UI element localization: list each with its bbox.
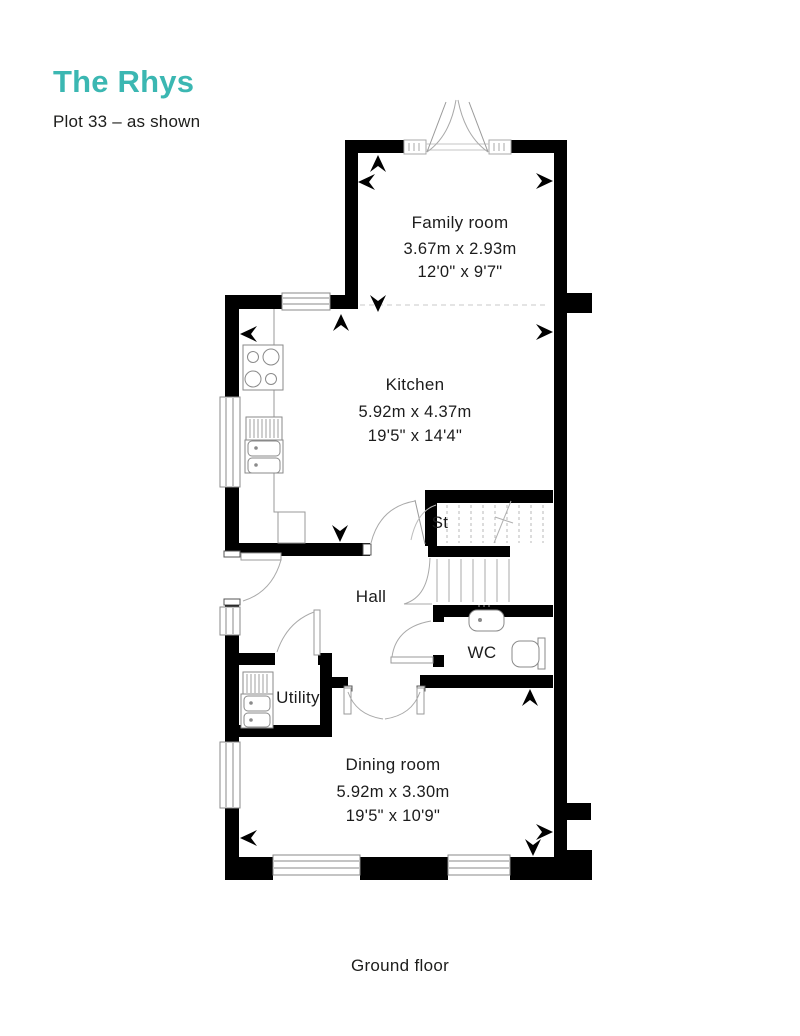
kitchen-label: Kitchen bbox=[386, 375, 445, 394]
kitchen-sink bbox=[245, 417, 283, 473]
hall-label: Hall bbox=[356, 587, 387, 606]
family-room-label: Family room bbox=[412, 213, 509, 232]
dining-room-label: Dining room bbox=[346, 755, 441, 774]
wc-label: WC bbox=[468, 643, 497, 662]
wc-toilet bbox=[512, 638, 545, 669]
kitchen-imperial: 19'5" x 14'4" bbox=[368, 427, 462, 445]
french-doors bbox=[404, 100, 511, 154]
floorplan-drawing: Family room 3.67m x 2.93m 12'0" x 9'7" K… bbox=[0, 0, 800, 1036]
dining-double-doors bbox=[344, 686, 425, 719]
family-room-metric: 3.67m x 2.93m bbox=[403, 240, 516, 258]
dining-room-imperial: 19'5" x 10'9" bbox=[346, 807, 440, 825]
dining-bottom-window-right bbox=[448, 855, 510, 875]
dining-side-window bbox=[220, 742, 240, 808]
kitchen-side-window bbox=[220, 397, 240, 487]
floor-name-label: Ground floor bbox=[0, 956, 800, 976]
wc-door bbox=[391, 621, 433, 663]
kitchen-top-window bbox=[282, 293, 330, 310]
family-room-imperial: 12'0" x 9'7" bbox=[418, 263, 503, 281]
floorplan-page: The Rhys Plot 33 – as shown bbox=[0, 0, 800, 1036]
utility-door bbox=[277, 610, 320, 655]
store-label: St bbox=[432, 513, 449, 532]
kitchen-metric: 5.92m x 4.37m bbox=[358, 403, 471, 421]
dining-room-metric: 5.92m x 3.30m bbox=[336, 783, 449, 801]
dimension-arrows bbox=[240, 155, 553, 856]
kitchen-door bbox=[363, 500, 425, 555]
front-door bbox=[224, 551, 281, 605]
hob bbox=[243, 345, 283, 390]
utility-sink bbox=[241, 672, 273, 728]
dining-bottom-window-left bbox=[273, 855, 360, 875]
utility-label: Utility bbox=[276, 688, 320, 707]
hall-side-window bbox=[220, 607, 240, 635]
